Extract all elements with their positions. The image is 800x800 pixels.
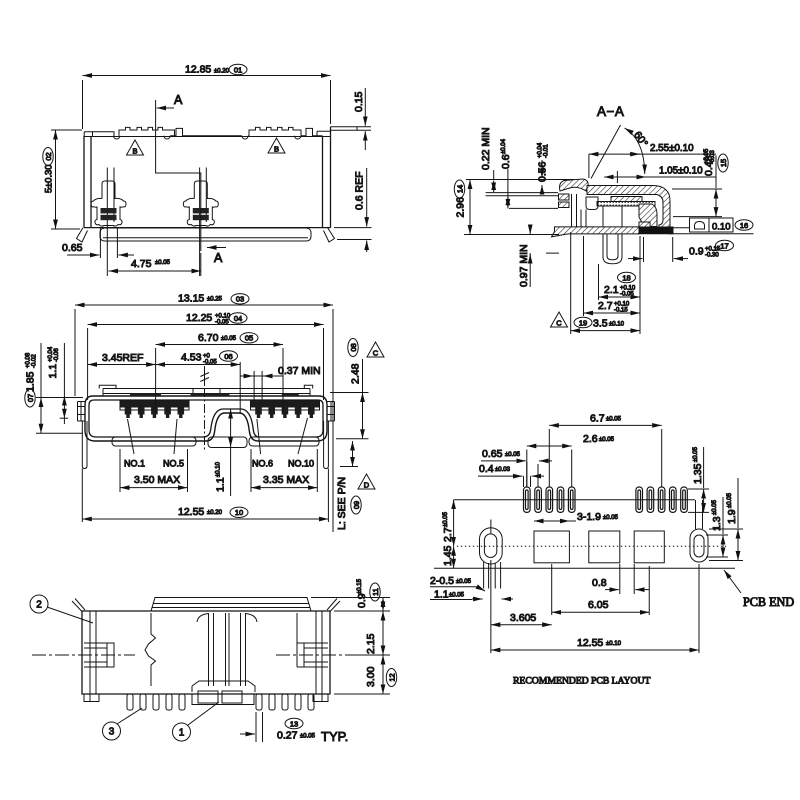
svg-text:NO.5: NO.5 — [163, 459, 184, 469]
svg-text:03: 03 — [236, 295, 244, 304]
svg-text:01: 01 — [234, 65, 242, 74]
svg-text:4.75: 4.75 — [131, 258, 152, 270]
svg-text:2.1: 2.1 — [604, 284, 619, 296]
svg-text:0.4: 0.4 — [479, 463, 494, 475]
svg-text:17: 17 — [720, 241, 728, 250]
svg-text:0.9: 0.9 — [689, 246, 704, 258]
svg-text:11: 11 — [371, 588, 380, 596]
svg-text:14: 14 — [455, 185, 464, 193]
svg-text:6.05: 6.05 — [588, 599, 609, 611]
svg-text:60°: 60° — [631, 129, 650, 149]
svg-text:±0.10: ±0.10 — [216, 461, 222, 477]
svg-text:3.45REF: 3.45REF — [102, 352, 143, 364]
svg-text:±0.10: ±0.10 — [606, 641, 622, 647]
svg-text:18: 18 — [622, 273, 630, 282]
svg-text:04: 04 — [234, 314, 242, 323]
svg-text:05: 05 — [245, 334, 253, 343]
svg-text:A−A: A−A — [597, 104, 624, 119]
svg-text:±0.25: ±0.25 — [207, 297, 223, 303]
svg-text:±0.05: ±0.05 — [155, 260, 171, 266]
svg-text:0.10: 0.10 — [712, 222, 731, 233]
svg-text:±0.05: ±0.05 — [603, 515, 619, 521]
svg-text:±0.05: ±0.05 — [456, 579, 472, 585]
svg-text:0.9: 0.9 — [356, 593, 368, 608]
svg-text:-0.05: -0.05 — [620, 292, 634, 298]
svg-text:B: B — [274, 144, 279, 153]
svg-text:2.48: 2.48 — [350, 363, 362, 384]
svg-text:1.1: 1.1 — [47, 364, 59, 379]
svg-text:±0.05: ±0.05 — [727, 492, 733, 508]
svg-text:±0.05: ±0.05 — [505, 452, 521, 458]
svg-text:0.37 MIN: 0.37 MIN — [278, 365, 321, 377]
svg-text:±0.10: ±0.10 — [609, 322, 625, 328]
svg-text:C: C — [556, 318, 562, 327]
svg-text:2.7: 2.7 — [598, 300, 613, 312]
svg-text:A: A — [174, 93, 183, 107]
svg-text:NO.10: NO.10 — [288, 459, 314, 469]
svg-text:0.56: 0.56 — [537, 161, 549, 182]
svg-text:±0.15: ±0.15 — [357, 578, 363, 594]
svg-text:02: 02 — [44, 152, 53, 160]
svg-text:1.45: 1.45 — [442, 545, 454, 566]
svg-text:±0.05: ±0.05 — [443, 511, 449, 527]
svg-text:C: C — [373, 348, 379, 357]
svg-text:D: D — [364, 480, 370, 489]
svg-text:±0.05: ±0.05 — [599, 437, 615, 443]
svg-text:±0.05: ±0.05 — [221, 336, 237, 342]
svg-text:2.6: 2.6 — [583, 433, 598, 445]
svg-text:-0.05: -0.05 — [215, 320, 229, 326]
svg-text:3.35 MAX: 3.35 MAX — [263, 474, 309, 486]
svg-text:L: SEE P/N: L: SEE P/N — [336, 477, 348, 530]
svg-text:12: 12 — [387, 673, 396, 681]
svg-text:±0.05: ±0.05 — [300, 734, 316, 740]
svg-text:1.1: 1.1 — [434, 589, 449, 601]
svg-text:3-1.9: 3-1.9 — [577, 511, 601, 523]
svg-text:1: 1 — [179, 728, 185, 739]
svg-text:NO.6: NO.6 — [252, 459, 273, 469]
svg-text:0.65: 0.65 — [482, 448, 503, 460]
svg-text:0.15: 0.15 — [353, 91, 365, 112]
svg-text:1.9: 1.9 — [726, 509, 738, 524]
svg-text:2.55±0.10: 2.55±0.10 — [650, 143, 694, 154]
svg-text:13.15: 13.15 — [178, 293, 204, 305]
svg-text:0.8: 0.8 — [592, 577, 607, 589]
svg-text:±0.05: ±0.05 — [606, 417, 622, 423]
svg-text:-0.30: -0.30 — [705, 253, 719, 259]
svg-text:2-0.5: 2-0.5 — [430, 575, 454, 587]
svg-text:0.6: 0.6 — [500, 154, 512, 169]
svg-text:±0.05: ±0.05 — [712, 499, 718, 515]
svg-text:0.27: 0.27 — [277, 730, 298, 742]
svg-text:3.00: 3.00 — [365, 666, 377, 687]
svg-text:PCB END: PCB END — [743, 595, 794, 609]
svg-text:2.96: 2.96 — [455, 197, 467, 218]
svg-text:1.35: 1.35 — [692, 463, 704, 484]
svg-text:3.605: 3.605 — [510, 612, 536, 624]
svg-text:0.6 REF: 0.6 REF — [354, 171, 366, 210]
svg-text:1.1: 1.1 — [215, 477, 227, 492]
svg-text:±0.05: ±0.05 — [693, 446, 699, 462]
svg-text:-0.02: -0.02 — [32, 354, 38, 368]
svg-text:12.25: 12.25 — [186, 312, 212, 324]
svg-text:RECOMMENDED PCB LAYOUT: RECOMMENDED PCB LAYOUT — [513, 676, 650, 687]
svg-text:07: 07 — [26, 394, 35, 402]
svg-text:-0.05: -0.05 — [203, 360, 217, 366]
svg-text:1.05±0.10: 1.05±0.10 — [659, 166, 703, 177]
svg-text:-0.03: -0.03 — [710, 150, 716, 164]
svg-text:2.7: 2.7 — [442, 527, 454, 542]
svg-text:±0.20: ±0.20 — [214, 69, 230, 75]
svg-text:6.7: 6.7 — [590, 413, 605, 425]
svg-text:12.85: 12.85 — [185, 64, 211, 76]
svg-text:09: 09 — [352, 501, 361, 509]
svg-text:12.55: 12.55 — [178, 506, 204, 518]
svg-text:06: 06 — [224, 352, 232, 361]
svg-text:3.5: 3.5 — [593, 318, 608, 330]
svg-text:0.65: 0.65 — [62, 242, 83, 254]
svg-text:-0.01: -0.01 — [544, 144, 550, 158]
svg-text:0.22 MIN: 0.22 MIN — [480, 127, 492, 170]
svg-text:-0.15: -0.15 — [614, 308, 628, 314]
svg-text:08: 08 — [349, 343, 358, 351]
svg-text:3.50 MAX: 3.50 MAX — [134, 474, 180, 486]
svg-text:2: 2 — [36, 600, 42, 611]
svg-text:2.15: 2.15 — [365, 633, 377, 654]
svg-text:±0.03: ±0.03 — [495, 467, 511, 473]
svg-text:19: 19 — [579, 318, 587, 327]
svg-text:4.53: 4.53 — [181, 352, 202, 364]
svg-text:A: A — [214, 251, 223, 265]
svg-text:5±0.30: 5±0.30 — [44, 165, 54, 193]
svg-text:15: 15 — [719, 159, 728, 167]
svg-text:0.97 MIN: 0.97 MIN — [518, 244, 530, 287]
svg-text:6.70: 6.70 — [198, 332, 219, 344]
svg-text:-0.06: -0.06 — [54, 348, 60, 362]
svg-text:12.55: 12.55 — [577, 637, 603, 649]
svg-text:±0.20: ±0.20 — [207, 510, 223, 516]
svg-text:10: 10 — [235, 508, 243, 517]
svg-text:16: 16 — [740, 221, 748, 230]
svg-text:±0.04: ±0.04 — [501, 138, 507, 154]
svg-text:B: B — [132, 146, 137, 155]
svg-text:TYP.: TYP. — [321, 729, 348, 744]
svg-text:NO.1: NO.1 — [124, 459, 145, 469]
svg-text:3: 3 — [109, 727, 115, 738]
svg-text:13: 13 — [290, 719, 298, 728]
svg-text:±0.05: ±0.05 — [449, 593, 465, 599]
